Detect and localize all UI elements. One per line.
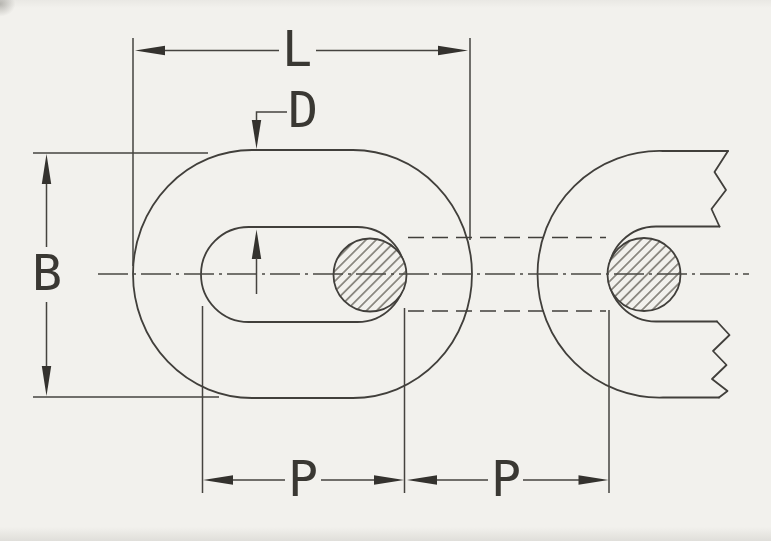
dimension-L: L <box>133 20 470 266</box>
scanned-chain-link-drawing: L D B P <box>0 0 771 541</box>
break-line-bottom <box>712 322 730 398</box>
wire-cross-section-left <box>334 239 407 312</box>
arrowhead-up <box>42 154 51 184</box>
arrowhead-down <box>252 120 261 149</box>
label-L: L <box>282 20 312 78</box>
arrowhead-right <box>438 46 468 55</box>
label-B: B <box>32 244 62 302</box>
arrowhead-up <box>252 230 261 260</box>
leader-line <box>257 112 288 120</box>
arrowhead-left <box>135 46 165 55</box>
break-line-top <box>712 151 729 227</box>
label-D: D <box>288 81 318 139</box>
chain-link-dimension-diagram: L D B P <box>0 0 771 541</box>
arrowhead-down <box>42 366 51 396</box>
dimension-P-left: P <box>203 306 405 508</box>
arrowhead-right <box>579 475 609 484</box>
label-P-right: P <box>491 450 521 508</box>
wire-section-hatching <box>334 239 407 312</box>
dimension-B: B <box>32 153 219 397</box>
label-P-left: P <box>288 450 318 508</box>
arrowhead-right <box>374 475 404 484</box>
arrowhead-left <box>203 475 233 484</box>
dimension-P-right: P <box>407 310 609 508</box>
dimension-D: D <box>252 81 318 294</box>
arrowhead-left <box>407 475 437 484</box>
